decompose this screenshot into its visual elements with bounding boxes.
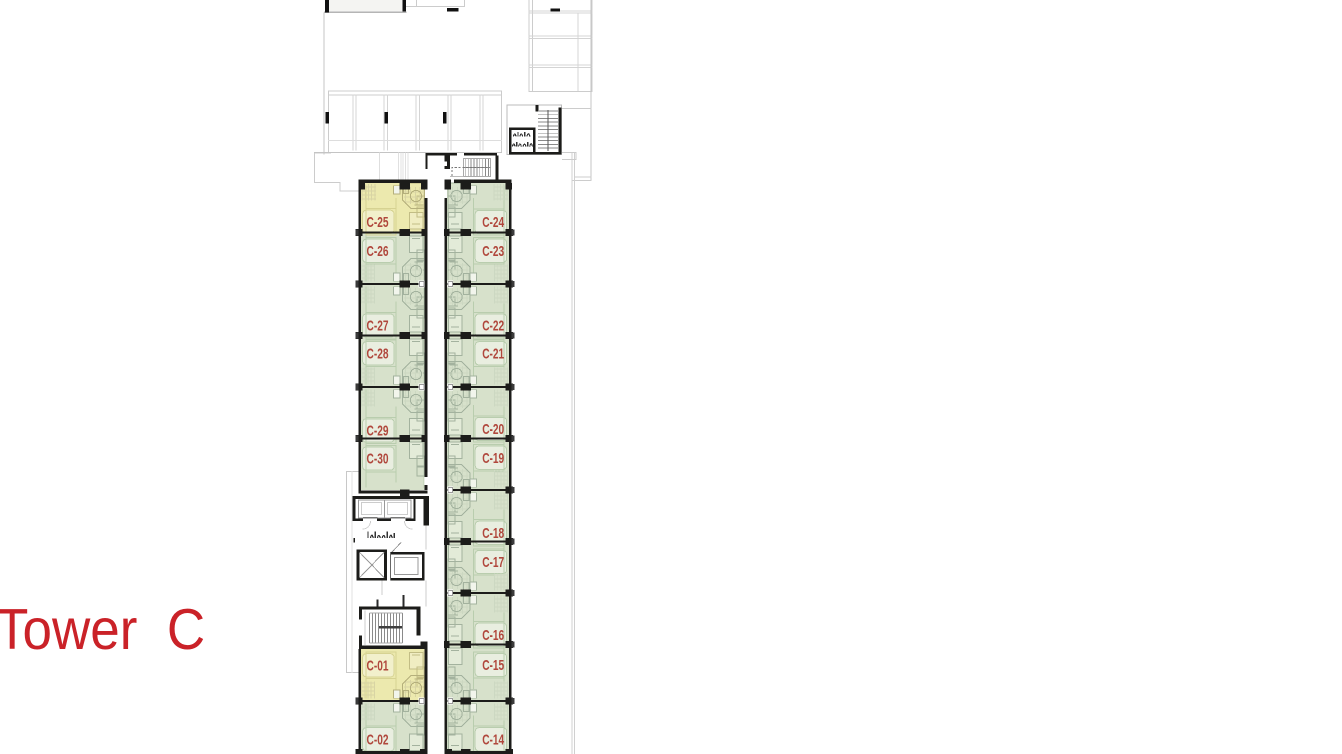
svg-text:C-27: C-27 xyxy=(367,318,389,334)
svg-text:C-28: C-28 xyxy=(367,346,389,362)
svg-text:C-19: C-19 xyxy=(482,450,504,466)
svg-text:C-18: C-18 xyxy=(482,525,504,541)
svg-text:C-24: C-24 xyxy=(482,214,504,230)
svg-text:C-17: C-17 xyxy=(482,554,504,570)
svg-text:C-23: C-23 xyxy=(482,243,504,259)
svg-text:C-02: C-02 xyxy=(367,732,389,748)
svg-text:C-25: C-25 xyxy=(367,214,389,230)
svg-text:C-16: C-16 xyxy=(482,627,504,643)
svg-text:C-29: C-29 xyxy=(367,423,389,439)
svg-text:C-22: C-22 xyxy=(482,318,504,334)
svg-text:Tower C: Tower C xyxy=(0,597,205,661)
svg-text:C-15: C-15 xyxy=(482,657,504,673)
svg-text:C-01: C-01 xyxy=(367,658,389,674)
svg-text:C-20: C-20 xyxy=(482,421,504,437)
svg-text:C-14: C-14 xyxy=(482,732,504,748)
svg-text:C-21: C-21 xyxy=(482,346,504,362)
svg-text:C-30: C-30 xyxy=(367,451,389,467)
svg-text:C-26: C-26 xyxy=(367,243,389,259)
